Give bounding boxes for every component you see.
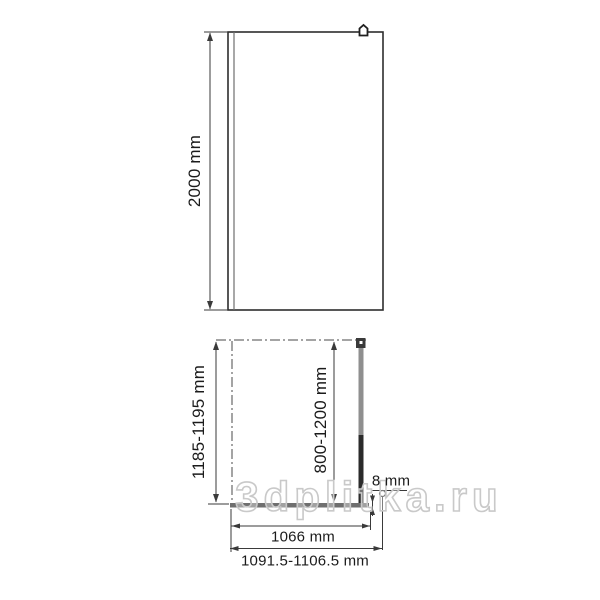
depth-dimension xyxy=(208,342,229,504)
height-dimension-label: 2000 mm xyxy=(185,135,205,207)
glass-thickness-dimension-label: 8 mm xyxy=(372,473,410,490)
support-bar-outer-tube xyxy=(359,348,364,435)
front-view xyxy=(204,25,383,310)
overall-width-dimension-label: 1091.5-1106.5 mm xyxy=(241,553,369,570)
support-bar-wall-cap-hole xyxy=(360,341,363,344)
support-bar-bracket xyxy=(360,25,368,36)
depth-dimension-label: 1185-1195 mm xyxy=(189,365,209,479)
watermark: 3dplitka.ru xyxy=(235,473,502,521)
support-bar-dimension-label: 800-1200 mm xyxy=(311,366,331,473)
height-dimension xyxy=(204,32,228,310)
glass-panel-front xyxy=(228,32,383,310)
shower-screen-technical-drawing: 3dplitka.ru 2000 mm 1185-1195 mm 800-120… xyxy=(0,0,600,600)
glass-width-dimension-label: 1066 mm xyxy=(271,529,335,546)
